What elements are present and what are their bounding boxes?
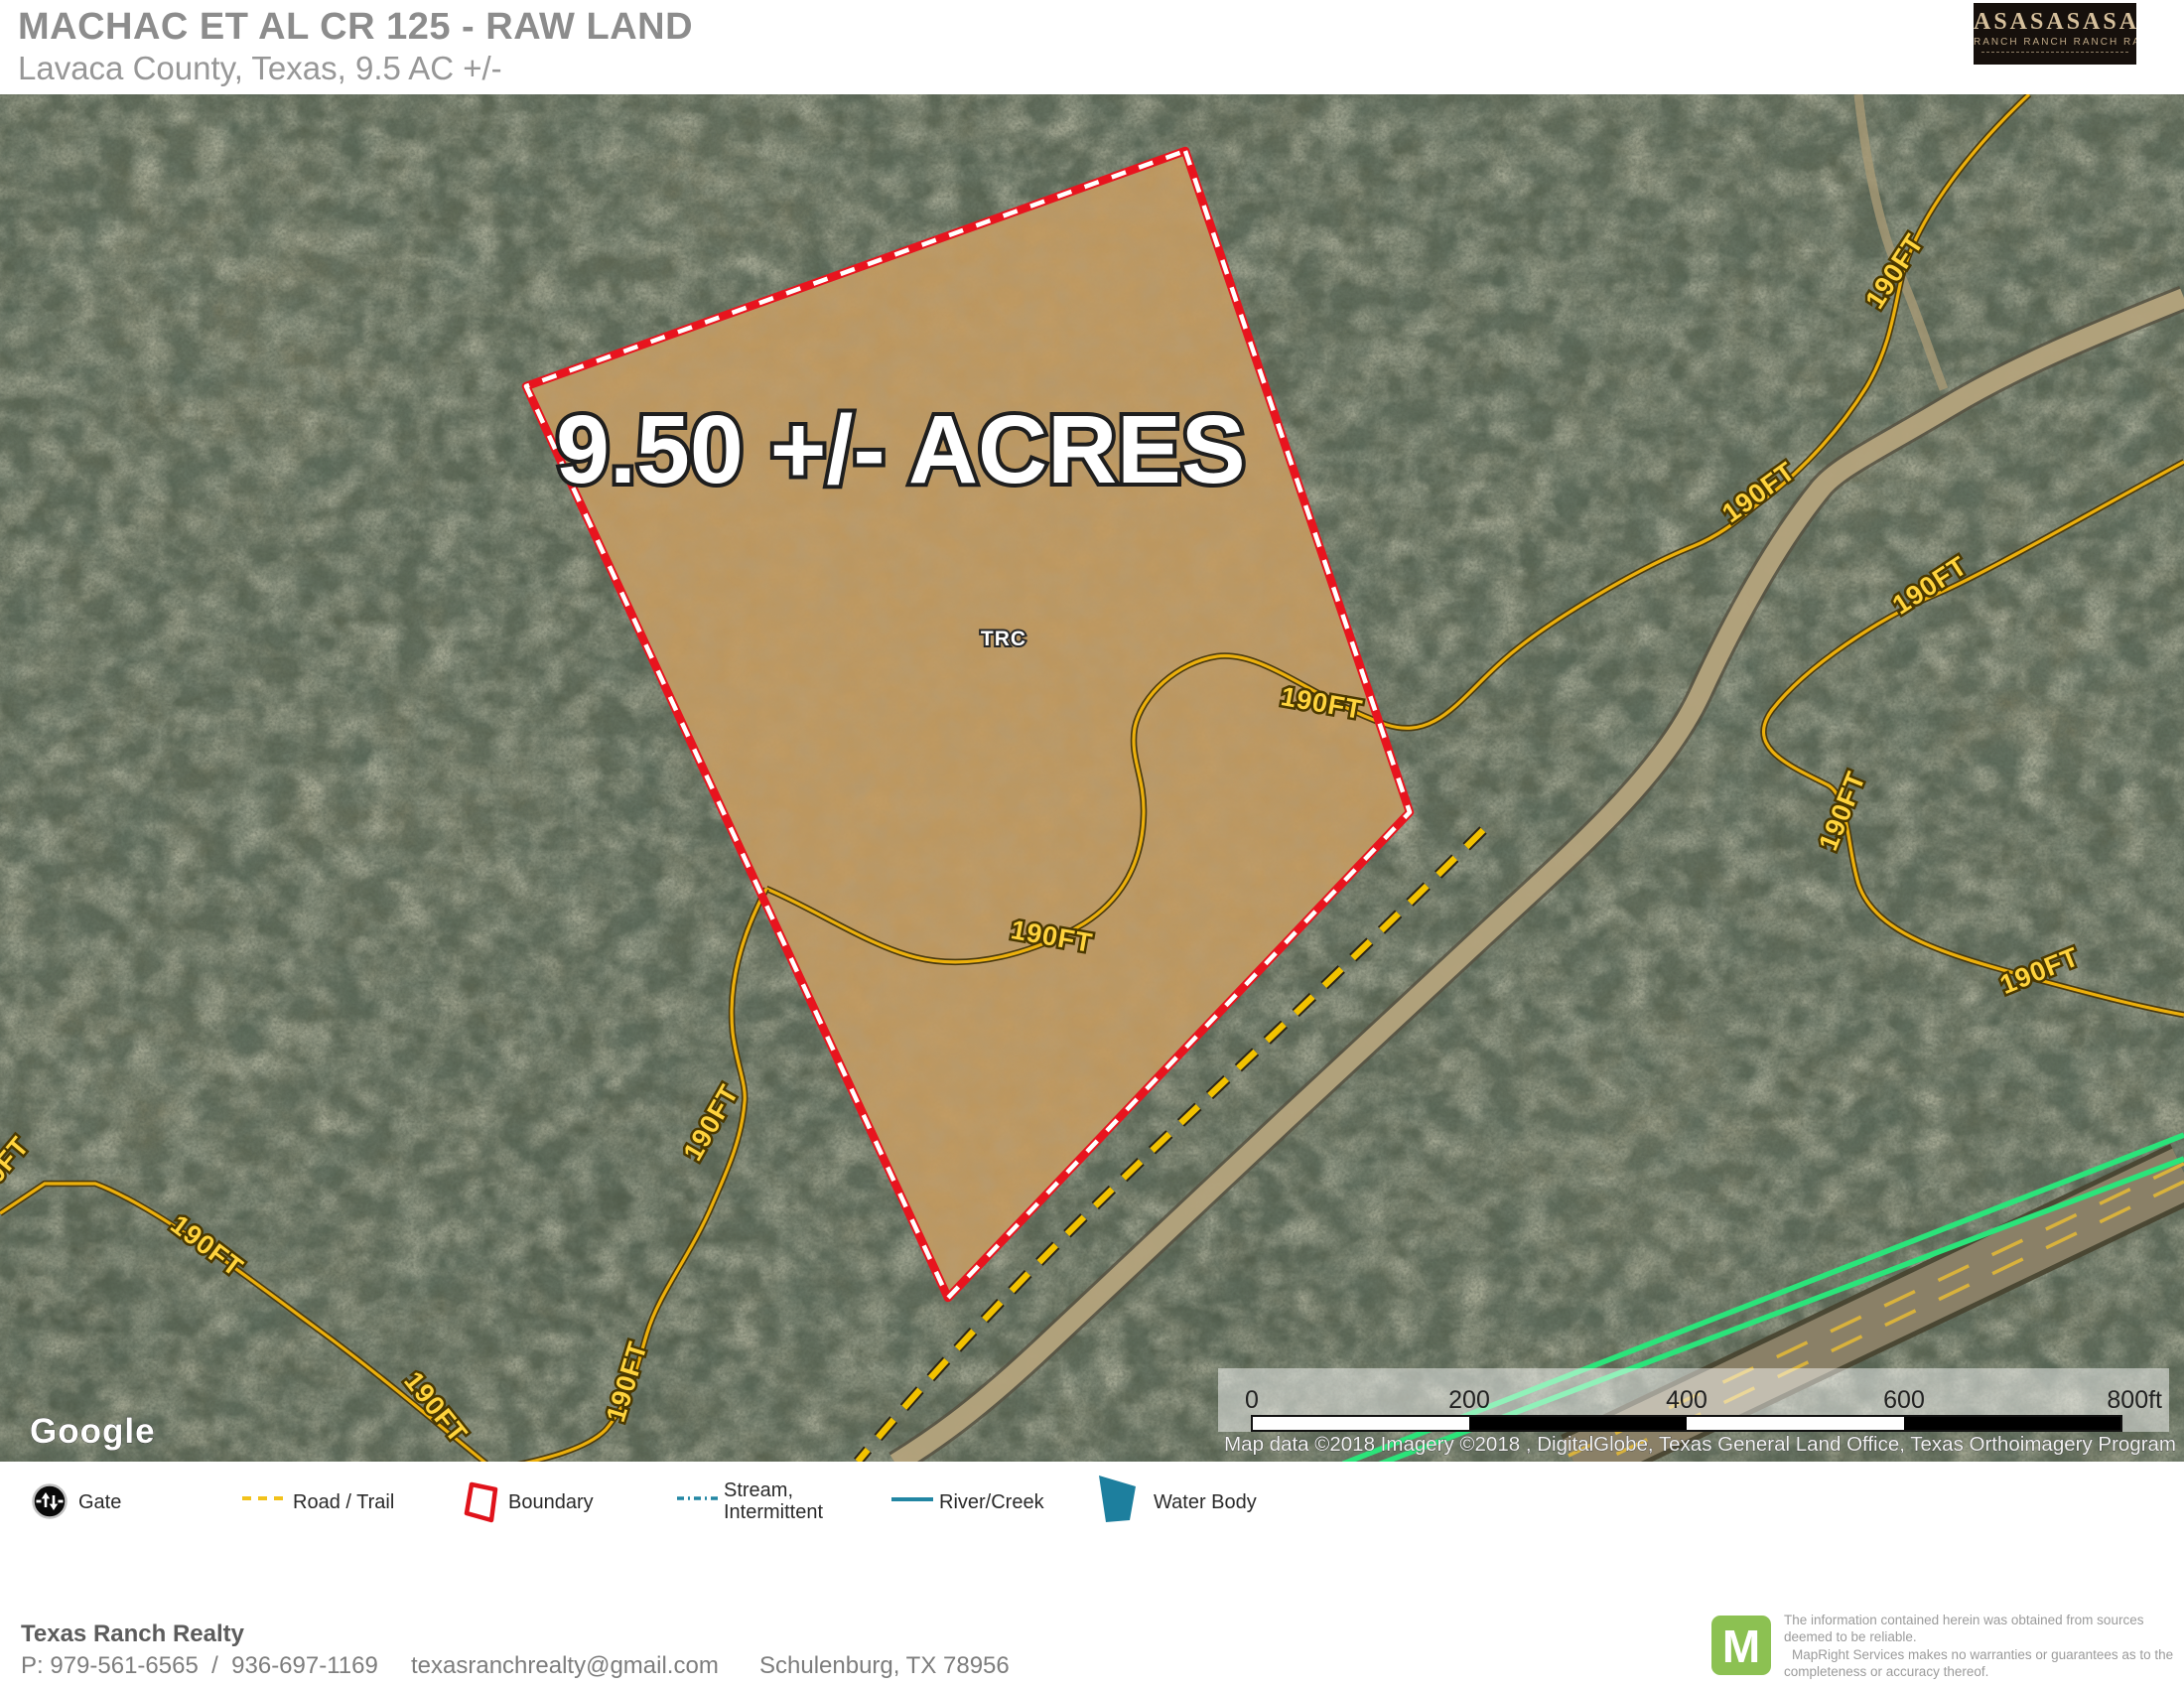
scale-tick: 600 bbox=[1883, 1386, 1925, 1414]
acreage-label: 9.50 +/- ACRES bbox=[556, 395, 1246, 503]
company-name: Texas Ranch Realty bbox=[21, 1620, 244, 1648]
legend-label-gate: Gate bbox=[78, 1491, 121, 1514]
map-attribution: Map data ©2018 Imagery ©2018 , DigitalGl… bbox=[1224, 1433, 2176, 1456]
listing-flyer: MACHAC ET AL CR 125 - RAW LAND Lavaca Co… bbox=[0, 0, 2184, 1688]
scale-tick: 0 bbox=[1245, 1386, 1259, 1414]
legend-label-stream-line2: Intermittent bbox=[724, 1501, 823, 1523]
phone-numbers: P: 979-561-6565 / 936-697-1169 bbox=[21, 1652, 378, 1680]
satellite-map: 190FT 190FT 190FT 190FT 190FT 190FT 190F… bbox=[0, 94, 2184, 1462]
water-body-icon bbox=[1097, 1474, 1149, 1525]
gate-icon bbox=[30, 1481, 71, 1523]
legend: Gate Road / Trail Boundary Stream, Inter… bbox=[0, 1462, 2184, 1571]
legend-label-stream-line1: Stream, bbox=[724, 1479, 793, 1501]
page-title: MACHAC ET AL CR 125 - RAW LAND bbox=[18, 6, 693, 49]
scale-tick: 800ft bbox=[2107, 1386, 2162, 1414]
brand-logo-pattern-row2: RANCH RANCH RANCH RANCH bbox=[1974, 37, 2136, 49]
email-address: texasranchrealty@gmail.com bbox=[411, 1652, 719, 1680]
brand-logo-pattern-row1: ASASASASA bbox=[1974, 7, 2136, 37]
legend-label-stream: Stream, Intermittent bbox=[724, 1479, 823, 1523]
page-subtitle: Lavaca County, Texas, 9.5 AC +/- bbox=[18, 50, 502, 87]
legend-label-water-body: Water Body bbox=[1154, 1491, 1257, 1514]
map-canvas: 190FT 190FT 190FT 190FT 190FT 190FT 190F… bbox=[0, 94, 2184, 1462]
disclaimer-line2: MapRight Services makes no warranties or… bbox=[1784, 1646, 2179, 1681]
scale-tick: 400 bbox=[1666, 1386, 1707, 1414]
google-logo: Google bbox=[30, 1412, 156, 1451]
mapright-logo: M bbox=[1711, 1616, 1771, 1675]
road-trail-icon bbox=[241, 1493, 291, 1503]
city-address: Schulenburg, TX 78956 bbox=[759, 1652, 1010, 1680]
brand-logo-divider bbox=[1981, 52, 2128, 53]
disclaimer-text: The information contained herein was obt… bbox=[1784, 1612, 2179, 1680]
boundary-icon bbox=[462, 1479, 503, 1527]
legend-label-river-creek: River/Creek bbox=[939, 1491, 1044, 1514]
legend-label-road-trail: Road / Trail bbox=[293, 1491, 394, 1514]
stream-intermittent-icon bbox=[676, 1493, 722, 1503]
tract-label: TRC bbox=[981, 628, 1026, 650]
disclaimer-line1: The information contained herein was obt… bbox=[1784, 1612, 2179, 1646]
scale-tick: 200 bbox=[1448, 1386, 1490, 1414]
brand-logo: ASASASASA RANCH RANCH RANCH RANCH bbox=[1974, 3, 2136, 65]
scale-bar: 0 200 400 600 800ft bbox=[1218, 1368, 2169, 1432]
legend-label-boundary: Boundary bbox=[508, 1491, 594, 1514]
river-creek-icon bbox=[890, 1494, 934, 1504]
header: MACHAC ET AL CR 125 - RAW LAND Lavaca Co… bbox=[0, 0, 2184, 94]
